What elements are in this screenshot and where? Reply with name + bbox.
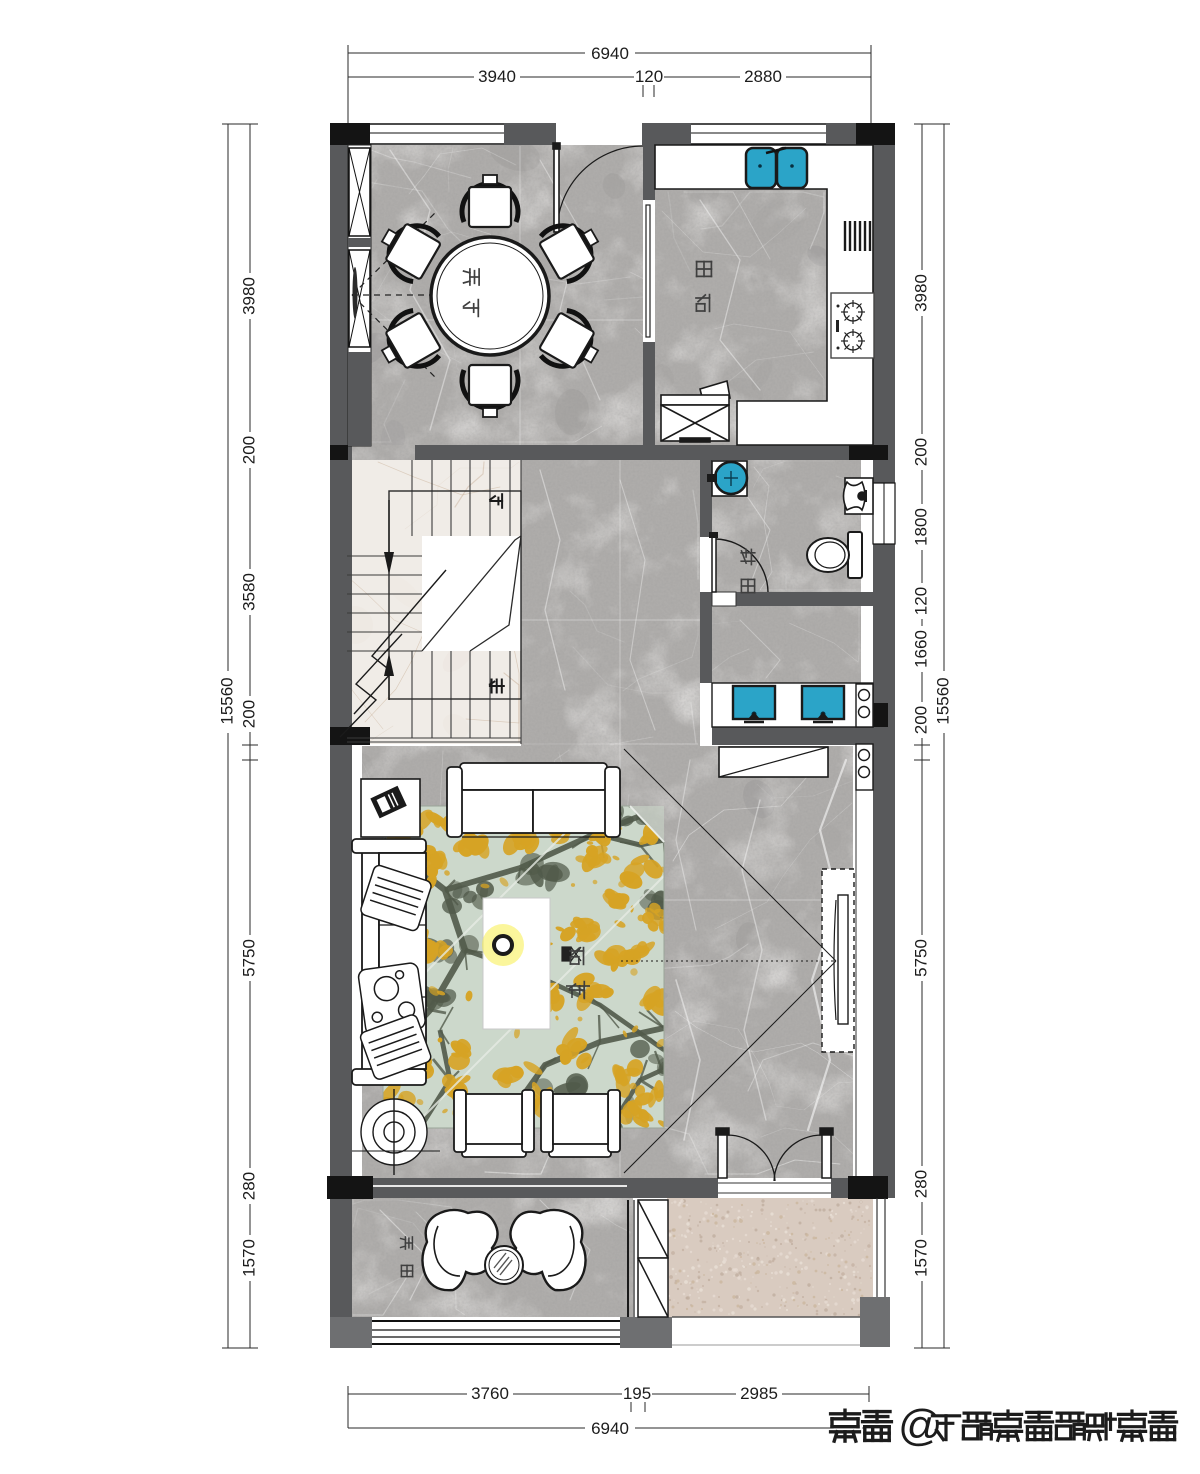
svg-text:120: 120	[635, 67, 663, 86]
svg-text:1570: 1570	[911, 1239, 930, 1277]
svg-text:280: 280	[911, 1170, 930, 1198]
svg-text:3580: 3580	[239, 573, 258, 611]
svg-text:200: 200	[911, 706, 930, 734]
svg-text:120: 120	[911, 587, 930, 615]
svg-text:5750: 5750	[911, 939, 930, 977]
svg-text:1800: 1800	[911, 508, 930, 546]
svg-text:6940: 6940	[591, 1419, 629, 1438]
svg-text:200: 200	[239, 436, 258, 464]
svg-text:3940: 3940	[478, 67, 516, 86]
svg-text:3980: 3980	[911, 274, 930, 312]
svg-text:3760: 3760	[471, 1384, 509, 1403]
svg-text:1660: 1660	[911, 630, 930, 668]
svg-text:15560: 15560	[217, 677, 236, 724]
svg-text:15560: 15560	[933, 677, 952, 724]
svg-text:200: 200	[911, 438, 930, 466]
svg-text:6940: 6940	[591, 44, 629, 63]
svg-text:2985: 2985	[740, 1384, 778, 1403]
svg-text:1570: 1570	[239, 1239, 258, 1277]
svg-text:200: 200	[239, 700, 258, 728]
svg-text:280: 280	[239, 1172, 258, 1200]
svg-text:2880: 2880	[744, 67, 782, 86]
svg-text:195: 195	[623, 1384, 651, 1403]
svg-text:3980: 3980	[239, 277, 258, 315]
svg-text:5750: 5750	[239, 939, 258, 977]
svg-text:@: @	[898, 1401, 943, 1450]
